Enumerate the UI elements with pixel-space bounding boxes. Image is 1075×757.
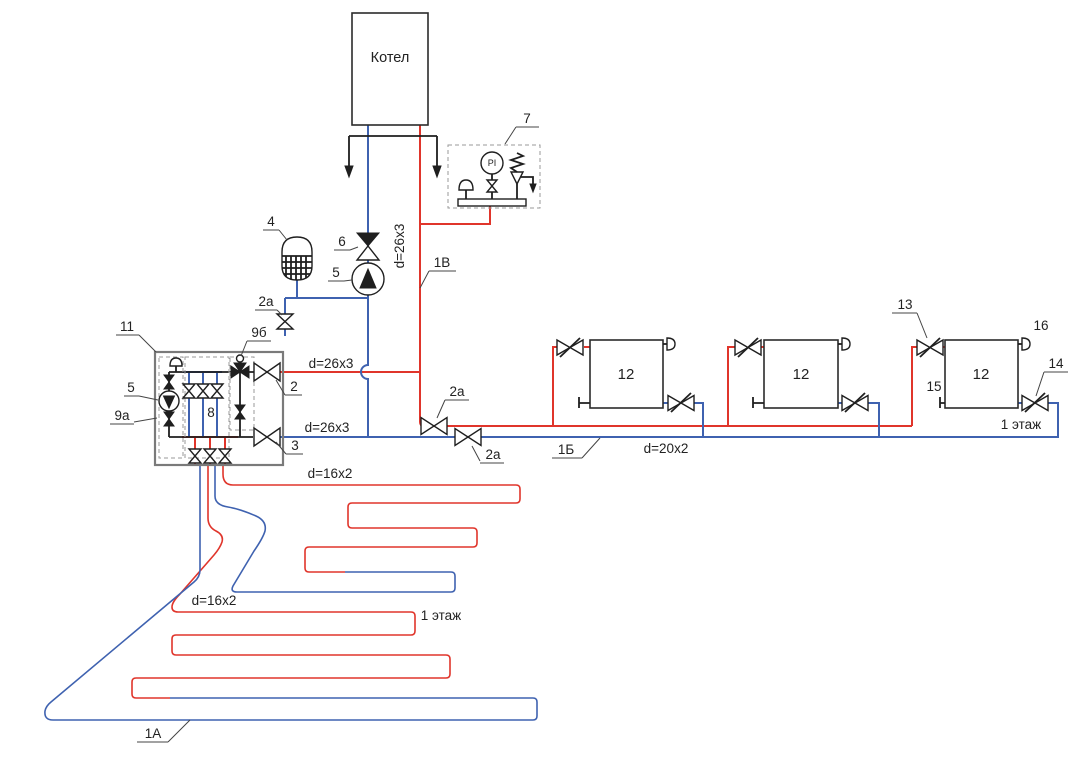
leader-1v xyxy=(420,271,456,288)
valve-icon xyxy=(277,314,293,329)
label-floor-loops: 1 этаж xyxy=(421,608,461,623)
down-arrow-icon xyxy=(433,166,441,177)
valve-3 xyxy=(254,428,280,446)
air-vent-dome xyxy=(459,180,473,190)
boiler-flow-arrows xyxy=(345,136,441,177)
down-arrow-icon xyxy=(345,166,353,177)
safety-manifold-bar xyxy=(458,199,526,206)
label-9a: 9а xyxy=(114,408,130,423)
radiator2-riser xyxy=(728,347,764,426)
mixing-unit-internals xyxy=(169,366,254,437)
safety-valve-icon xyxy=(511,153,536,199)
label-16: 16 xyxy=(1033,318,1048,333)
radiator-label: 12 xyxy=(793,366,810,383)
boiler: Котел xyxy=(345,13,441,177)
label-d26-return: d=26x3 xyxy=(305,420,350,435)
label-floor-radiators: 1 этаж xyxy=(1001,417,1041,432)
leader-4 xyxy=(263,230,287,240)
diagram-canvas: Котел PI xyxy=(0,0,1075,757)
label-2a-return: 2а xyxy=(485,447,501,462)
shutoff-valve-icon xyxy=(164,375,174,389)
boiler-body xyxy=(352,13,428,125)
mixing-unit-11 xyxy=(155,352,283,465)
spring-icon xyxy=(511,153,523,172)
check-valve-6 xyxy=(357,233,379,260)
main-valves xyxy=(421,418,481,446)
drain-valve-2a xyxy=(277,314,293,329)
valve-2 xyxy=(254,363,280,381)
leader-5-unit xyxy=(124,396,158,400)
label-5: 5 xyxy=(332,265,340,280)
safety-valve-body xyxy=(511,172,523,184)
air-vent-icon xyxy=(667,338,675,350)
valve-2a-supply xyxy=(421,418,447,435)
valve-2a-return xyxy=(455,429,481,446)
loop-valve-icon xyxy=(189,449,201,463)
label-1v: 1В xyxy=(434,255,451,270)
leader-13 xyxy=(892,313,927,338)
balancing-valve-icon xyxy=(197,384,209,398)
label-2a-drain: 2а xyxy=(258,294,274,309)
gauge-label: PI xyxy=(488,158,497,168)
label-2a-supply: 2а xyxy=(449,384,465,399)
label-1b: 1Б xyxy=(558,442,575,457)
label-d16-loop2: d=16x2 xyxy=(192,593,237,608)
radiator-3: 12 xyxy=(917,338,1048,412)
gauge-valve-icon xyxy=(487,180,497,192)
radiator-label: 12 xyxy=(618,366,635,383)
label-d16-loop1: d=16x2 xyxy=(308,466,353,481)
loop-valve-icon xyxy=(204,449,216,463)
label-8: 8 xyxy=(207,405,215,420)
label-14: 14 xyxy=(1048,356,1064,371)
air-vent-icon xyxy=(842,338,850,350)
valve-icon xyxy=(235,405,245,419)
check-valve-top xyxy=(357,233,379,246)
label-3: 3 xyxy=(291,438,299,453)
label-13: 13 xyxy=(897,297,912,312)
pressure-gauge-icon: PI xyxy=(481,152,503,199)
floor-loop1-supply xyxy=(223,465,520,572)
leader-9b xyxy=(241,341,271,356)
radiator1-riser xyxy=(553,347,590,426)
leader-2a-supply xyxy=(437,400,469,418)
safety-group: PI xyxy=(448,145,540,208)
leader-2 xyxy=(276,380,302,395)
air-vent-16 xyxy=(1022,338,1030,350)
mixing-unit-headers xyxy=(169,366,254,437)
label-7: 7 xyxy=(523,111,531,126)
label-11: 11 xyxy=(120,319,134,334)
leader-7 xyxy=(505,127,539,144)
plug-icon xyxy=(579,397,590,408)
label-1a: 1А xyxy=(145,726,162,741)
leader-5 xyxy=(328,280,352,281)
expansion-tank xyxy=(282,237,312,280)
label-2: 2 xyxy=(290,379,298,394)
label-d26-riser: d=26x3 xyxy=(392,224,407,269)
air-vent-icon xyxy=(170,358,182,366)
return-pipes xyxy=(45,125,1058,720)
plug-icon xyxy=(753,397,764,408)
label-5-unit: 5 xyxy=(127,380,135,395)
floor-loop2-supply xyxy=(132,465,450,698)
radiator-2: 12 xyxy=(735,338,868,412)
air-vent-icon xyxy=(459,180,473,199)
label-d20: d=20x2 xyxy=(644,441,689,456)
leader-11 xyxy=(116,335,156,352)
radiator-1: 12 xyxy=(557,338,694,412)
label-6: 6 xyxy=(338,234,346,249)
heating-scheme-svg: Котел PI xyxy=(0,0,1075,757)
leader-14 xyxy=(1036,372,1068,396)
radiator-label: 12 xyxy=(973,366,990,383)
boiler-label: Котел xyxy=(371,50,410,66)
balancing-valve-icon xyxy=(211,384,223,398)
check-valve-bottom xyxy=(357,246,379,260)
label-15: 15 xyxy=(926,379,941,394)
discharge-arrow-icon xyxy=(530,184,536,192)
label-9b: 9б xyxy=(251,325,267,340)
flow-arrow-lines xyxy=(349,136,437,168)
safety-group-pipe xyxy=(420,206,490,224)
label-4: 4 xyxy=(267,214,275,229)
label-d26-supply: d=26x3 xyxy=(309,356,354,371)
thermo-head-icon xyxy=(237,355,244,362)
shutoff-valve-icon xyxy=(164,412,174,426)
pump-5-main xyxy=(352,263,384,295)
